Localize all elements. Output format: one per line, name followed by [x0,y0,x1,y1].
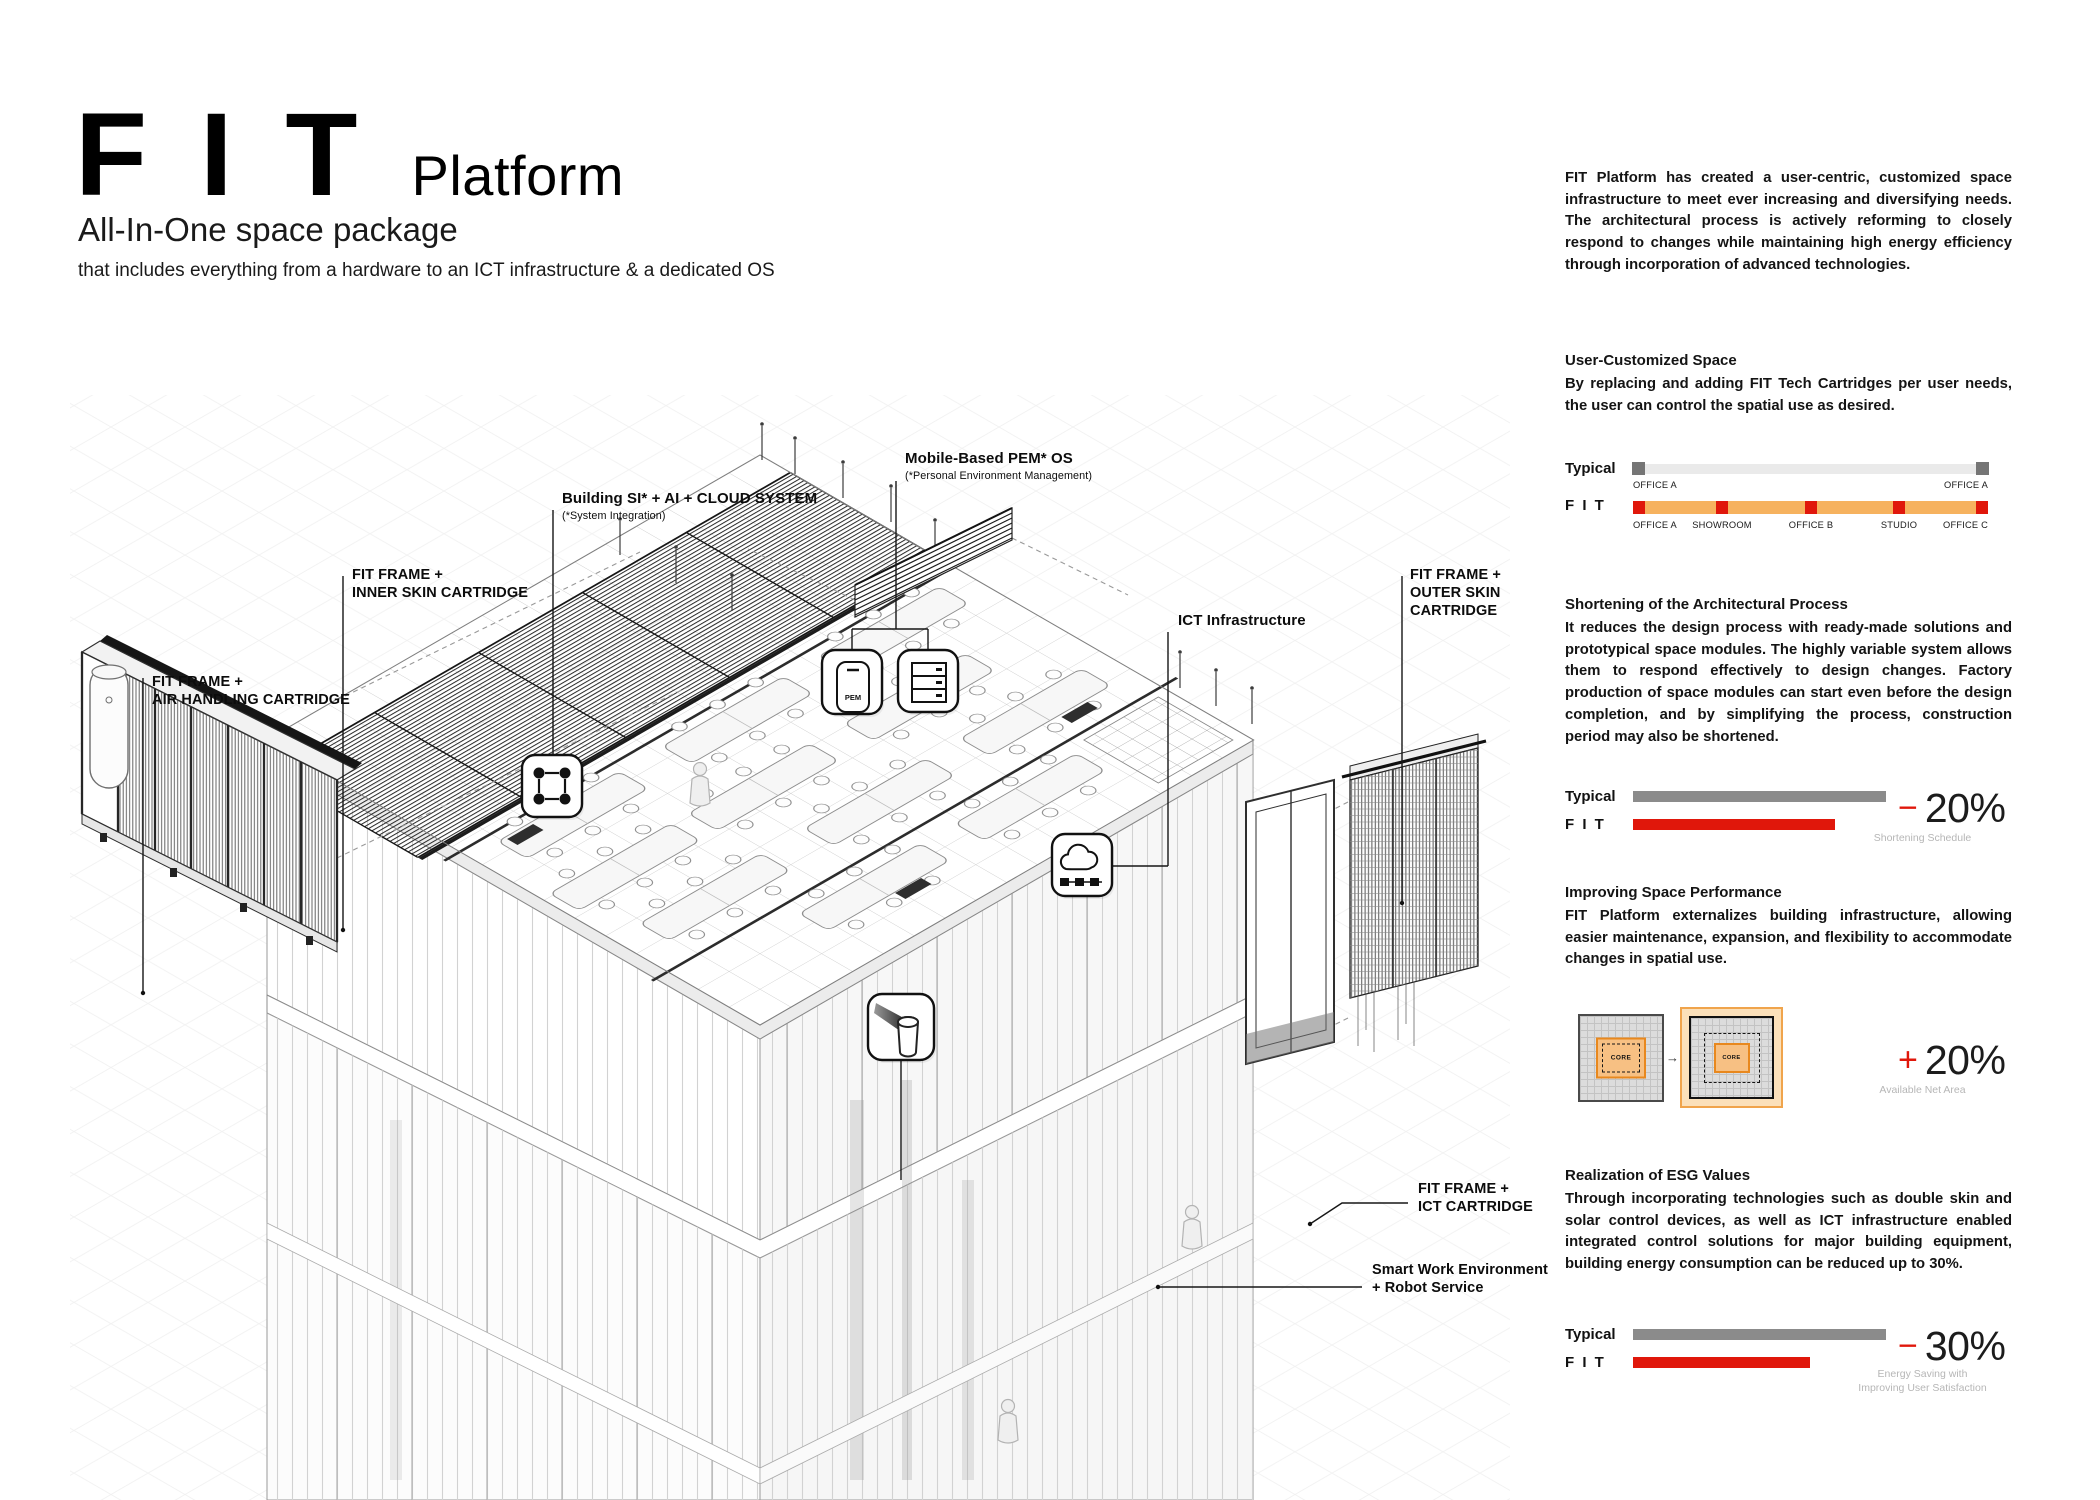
diagram-esg: Typical F I T − 30% Energy Saving with I… [1565,1326,2025,1406]
pem-phone-icon: PEM [822,650,884,717]
row-label-fit: F I T [1565,1354,1606,1371]
person-figure [690,763,710,807]
cloud-network-icon [1052,834,1114,899]
section-body-shortening: It reduces the design process with ready… [1565,618,2012,748]
row-label-fit: F I T [1565,816,1606,833]
fit-segment-label: OFFICE B [1789,520,1833,530]
tagline: All-In-One space package [78,211,458,249]
percent-caption: Energy Saving with Improving User Satisf… [1830,1368,2015,1396]
section-heading-space-performance: Improving Space Performance [1565,884,2012,901]
typical-space-bar [1633,464,1988,474]
typical-segment-label: OFFICE A [1633,480,1677,490]
arrow-icon: → [1666,1050,1679,1065]
section-body-esg: Through incorporating technologies such … [1565,1189,2012,1276]
server-stack-icon [898,650,960,715]
percent-value: 20% [1925,788,2006,829]
core-box: CORE [1714,1043,1750,1073]
fit-segment-label: OFFICE A [1633,520,1677,530]
person-figure [998,1400,1018,1444]
typical-segment-label: OFFICE A [1944,480,1988,490]
section-body-space-performance: FIT Platform externalizes building infra… [1565,906,2012,971]
label-smart-work-environment: Smart Work Environment + Robot Service [1372,1261,1548,1297]
diagram-user-customized: Typical OFFICE A OFFICE A F I T OFFICE A… [1565,452,2012,542]
typical-schedule-bar [1633,791,1886,802]
percent-value: 20% [1925,1040,2006,1081]
row-label-typical: Typical [1565,460,1616,477]
row-label-typical: Typical [1565,1326,1616,1343]
label-building-si-cloud: Building SI* + AI + CLOUD SYSTEM (*Syste… [562,490,817,523]
fit-schedule-bar [1633,819,1835,830]
air-handling-tank [90,666,128,788]
person-figure [1182,1206,1202,1250]
label-air-handling-cartridge: FIT FRAME + AIR HANDLING CARTRIDGE [152,673,350,709]
percent-value: 30% [1925,1326,2006,1367]
percent-caption: Shortening Schedule [1830,832,2015,846]
robot-service-icon [868,994,936,1063]
plus-sign: + [1898,1050,1918,1070]
section-heading-esg: Realization of ESG Values [1565,1167,2012,1184]
platform-wordmark: Platform [412,143,625,208]
typical-energy-bar [1633,1329,1886,1340]
diagram-shortening: Typical F I T − 20% Shortening Schedule [1565,788,2025,858]
fit-energy-bar [1633,1357,1810,1368]
minus-sign: − [1898,798,1918,818]
section-heading-user-customized: User-Customized Space [1565,352,2012,369]
label-outer-skin-cartridge: FIT FRAME + OUTER SKIN CARTRIDGE [1410,566,1501,620]
label-ict-infrastructure: ICT Infrastructure [1178,612,1306,631]
fit-plan-square: CORE [1680,1007,1783,1108]
header: F I T Platform [75,96,624,214]
label-inner-skin-cartridge: FIT FRAME + INNER SKIN CARTRIDGE [352,566,528,602]
fit-space-bar [1633,501,1988,514]
diagram-space-performance: CORE → CORE + 20% Available Net Area [1565,1000,2025,1118]
percent-caption: Available Net Area [1830,1084,2015,1098]
svg-text:PEM: PEM [845,693,861,702]
minus-sign: − [1898,1336,1918,1356]
typical-plan-square: CORE [1578,1014,1664,1102]
subtitle: that includes everything from a hardware… [78,260,775,282]
label-mobile-pem-os: Mobile-Based PEM* OS (*Personal Environm… [905,450,1092,483]
fit-segment-label: STUDIO [1881,520,1917,530]
energy-percent: − 30% [1898,1326,2005,1367]
fit-logo: F I T [75,96,368,214]
fit-segment-label: OFFICE C [1943,520,1988,530]
intro-paragraph: FIT Platform has created a user-centric,… [1565,168,2012,277]
fit-platform-poster: PEM FIT [0,0,2100,1500]
shortening-percent: − 20% [1898,788,2005,829]
row-label-fit: F I T [1565,497,1606,514]
system-network-icon [522,755,584,820]
net-area-percent: + 20% [1898,1040,2005,1081]
section-heading-shortening: Shortening of the Architectural Process [1565,596,2012,613]
section-body-user-customized: By replacing and adding FIT Tech Cartrid… [1565,374,2012,417]
ict-cartridge-frame [1246,780,1334,1064]
fit-segment-label: SHOWROOM [1692,520,1751,530]
row-label-typical: Typical [1565,788,1616,805]
core-box: CORE [1596,1038,1646,1079]
label-ict-cartridge: FIT FRAME + ICT CARTRIDGE [1418,1180,1533,1216]
